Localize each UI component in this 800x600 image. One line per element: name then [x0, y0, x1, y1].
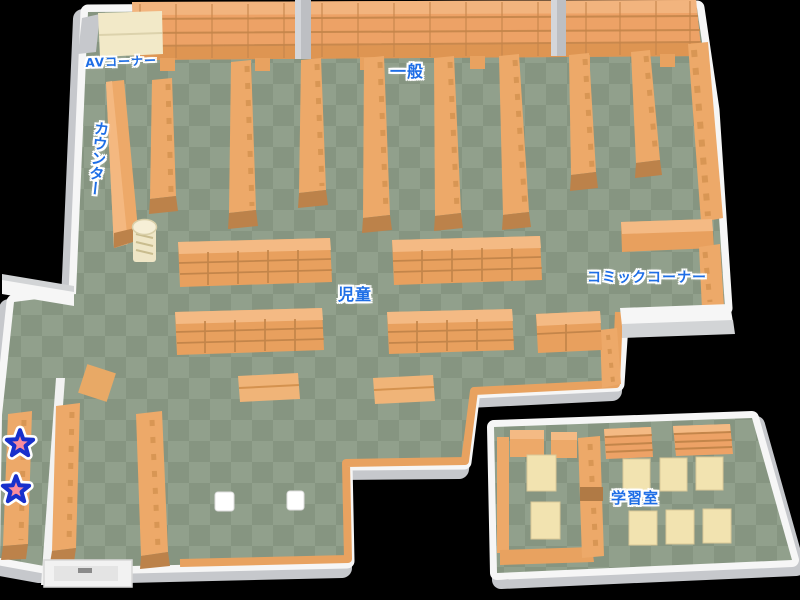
floor-map-drawing [0, 0, 800, 600]
entrance-door[interactable] [44, 560, 132, 587]
label-study-room: 学習室 [611, 487, 659, 508]
label-children: 児童 [338, 281, 372, 305]
low-table [238, 373, 300, 402]
stool [287, 491, 304, 510]
children-shelf-row2-right [387, 309, 514, 354]
kiosk-cylinder [133, 220, 157, 263]
study-table [527, 455, 556, 491]
stool [215, 492, 234, 511]
study-shelf-b [551, 432, 577, 458]
study-left-shelf-strip [497, 437, 509, 553]
label-comic-corner: コミックコーナー [587, 267, 707, 287]
study-shelf-stack [673, 424, 733, 456]
pillar [295, 0, 311, 59]
children-shelf-row2-left [175, 308, 324, 355]
label-av-corner: AVコーナー [85, 51, 157, 70]
children-shelf-row1-left [178, 238, 332, 287]
children-shelf-row1-right [392, 236, 542, 285]
study-shelf-a [510, 430, 544, 457]
low-table [373, 375, 435, 404]
children-shelf-row2-right-end [536, 311, 602, 353]
label-general: 一般 [390, 58, 424, 82]
comic-notch-wall [620, 304, 735, 338]
pillar [551, 0, 566, 56]
study-table [531, 502, 560, 539]
av-corner-desk [78, 11, 163, 57]
study-shelf-stack [604, 427, 653, 459]
library-floor-map: AVコーナー 一般 カウンター 児童 コミックコーナー 学習室 [0, 0, 800, 600]
study-divider-shelf [578, 436, 604, 558]
study-bottom-trim [500, 547, 594, 565]
